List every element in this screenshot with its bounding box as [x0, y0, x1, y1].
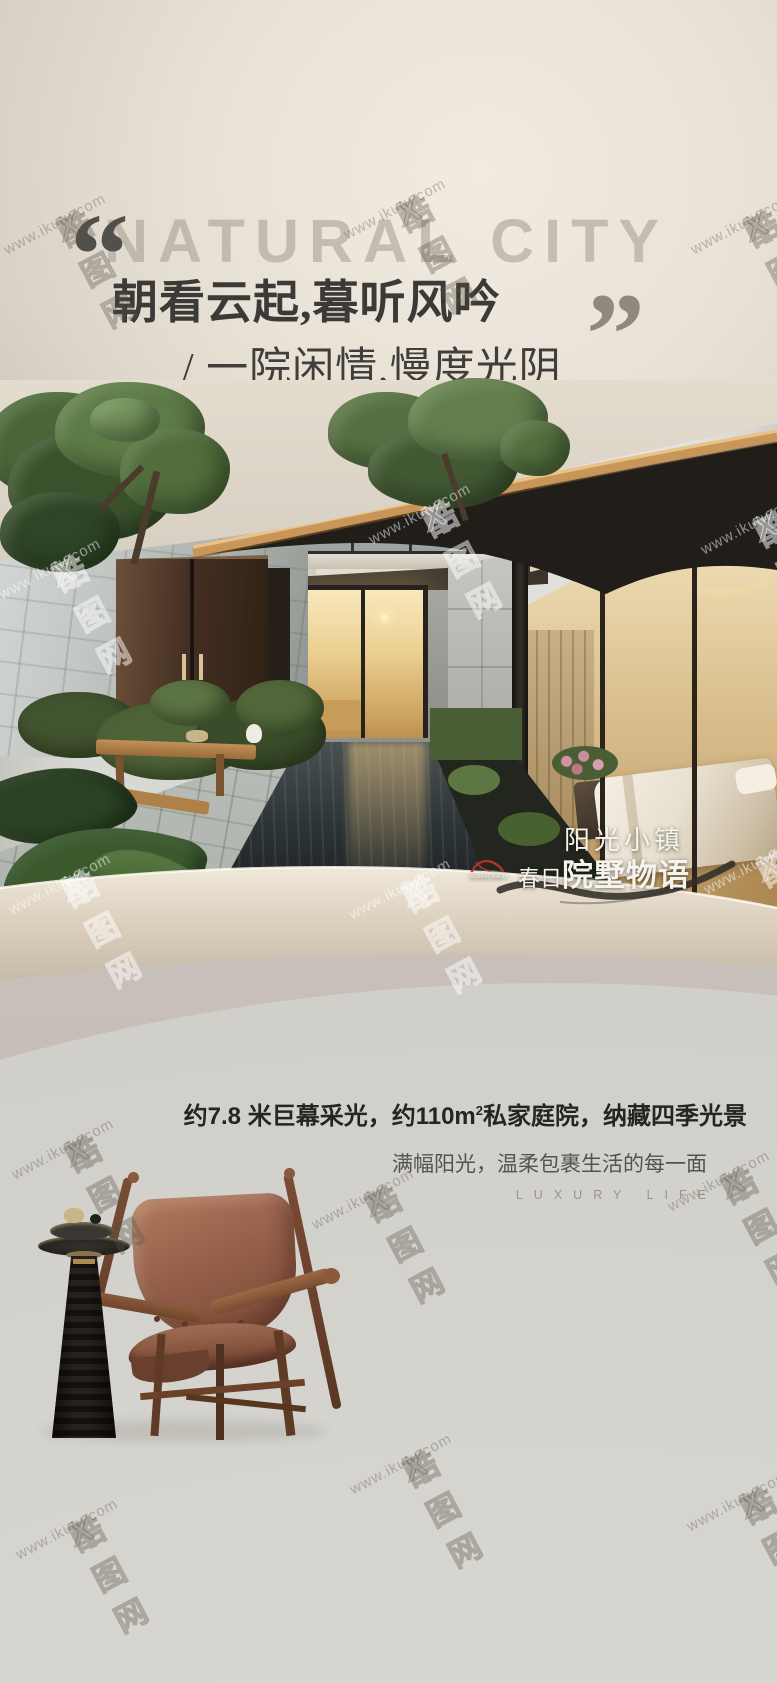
armrest-paw-end — [322, 1268, 340, 1284]
top-arch-curve — [0, 380, 777, 565]
logo-text-line2: RIVER BANK — [470, 874, 509, 881]
logo-swoosh-icon — [470, 858, 504, 874]
feature-subline: 满幅阳光，温柔包裹生活的每一面 — [392, 1148, 707, 1178]
feature-superscript: 2 — [476, 1103, 483, 1118]
chair-frame-tip — [128, 1172, 139, 1183]
chair-and-table-image — [36, 1148, 346, 1448]
caption-slogan-main: 院墅物语 — [562, 858, 690, 893]
feature-headline: 约7.8 米巨幕采光，约110m2私家庭院，纳藏四季光景 — [184, 1096, 747, 1131]
sunshine-river-bank-logo: SUNSHINE RIVER BANK — [470, 858, 516, 874]
caption-slogan: 春日院墅物语 — [518, 850, 690, 895]
side-table-tray — [50, 1222, 114, 1240]
feature-text-part2: 私家庭院，纳藏四季光景 — [483, 1103, 747, 1130]
close-quote-icon: ” — [586, 276, 645, 394]
cone-brass-band — [73, 1259, 95, 1264]
tray-teapot — [64, 1208, 84, 1223]
english-tagline: LUXURY LIFE — [516, 1188, 717, 1202]
feature-text-part1: 约7.8 米巨幕采光，约110m — [184, 1103, 476, 1130]
tray-cup — [90, 1214, 101, 1224]
caption-slogan-prefix: 春日 — [518, 866, 562, 891]
upholstery-button — [154, 1316, 160, 1322]
headline-line-1: 朝看云起,暮听风吟 — [112, 266, 501, 332]
real-estate-poster: NATURAL CITY “ ” 朝看云起,暮听风吟 / 一院闲情,慢度光阴 — [0, 0, 777, 1683]
chair-frame-tip — [284, 1168, 295, 1179]
bottom-info-section: 约7.8 米巨幕采光，约110m2私家庭院，纳藏四季光景 满幅阳光，温柔包裹生活… — [0, 940, 777, 1683]
